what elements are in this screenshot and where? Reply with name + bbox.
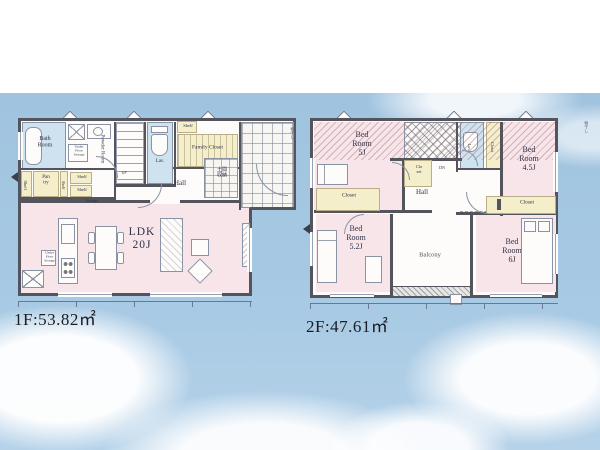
window-peak-icon bbox=[446, 111, 462, 118]
bed-5j bbox=[317, 164, 348, 185]
hall-1f-label: Hall bbox=[160, 180, 200, 188]
pantry-label: Pan try bbox=[33, 174, 59, 185]
entrance-storage-label: 土間 収納 bbox=[206, 167, 238, 178]
window bbox=[310, 158, 315, 188]
window bbox=[150, 292, 222, 297]
lav-1f-label: Lav. bbox=[147, 158, 173, 164]
window-peak-icon bbox=[126, 111, 142, 118]
window-peak-icon bbox=[62, 111, 78, 118]
wall bbox=[174, 122, 176, 186]
1f-area-label: 1F:53.82㎡ bbox=[14, 305, 96, 330]
bed-room-5j-label: Bed Room 5J bbox=[332, 131, 392, 158]
window bbox=[58, 292, 112, 297]
shelf-left-label: Shelf bbox=[23, 174, 28, 196]
bed-5-2j bbox=[317, 230, 337, 283]
window bbox=[553, 234, 558, 274]
pillow bbox=[524, 221, 536, 232]
shelf-box-2-label: Shelf bbox=[71, 187, 93, 192]
vent-mark-icon bbox=[303, 224, 310, 234]
bed-room-4-5j-label: Bed Room 4.5J bbox=[504, 146, 554, 173]
toilet-tank-1f bbox=[151, 126, 168, 133]
2f-area-label: 2F:47.61㎡ bbox=[306, 312, 388, 337]
wall bbox=[470, 214, 473, 298]
floor-plan-image: Bath Room Powder Room Under Floor Storag… bbox=[0, 0, 600, 450]
window bbox=[18, 132, 23, 160]
chair bbox=[117, 252, 124, 264]
bath-room-label: Bath Room bbox=[30, 135, 60, 148]
dimension-line-2f bbox=[310, 303, 558, 309]
wall bbox=[250, 207, 296, 210]
chair bbox=[88, 252, 95, 264]
1f-edge-note: 物干し bbox=[290, 120, 294, 146]
chair bbox=[117, 232, 124, 244]
side-table bbox=[191, 239, 209, 256]
balcony-label: Balcony bbox=[398, 251, 462, 258]
closet-tall-label: Closet bbox=[490, 127, 494, 167]
shelf-top-label: Shelf bbox=[178, 123, 198, 128]
dn-label: DN bbox=[437, 166, 447, 170]
closet-4-5j-label: Closet bbox=[496, 199, 558, 205]
window-peak-icon bbox=[518, 111, 534, 118]
window bbox=[247, 228, 252, 272]
desk-5-2j bbox=[365, 256, 382, 283]
window bbox=[330, 292, 374, 297]
chair bbox=[88, 232, 95, 244]
washer-pan bbox=[68, 124, 85, 140]
window bbox=[310, 232, 315, 266]
fridge-space bbox=[22, 270, 44, 288]
wall bbox=[458, 168, 502, 170]
vent-mark-icon bbox=[11, 172, 18, 182]
shelf-right-label: Shelf bbox=[61, 174, 65, 196]
pillow bbox=[538, 221, 550, 232]
window bbox=[490, 292, 542, 297]
closet-hall-label: Clo set bbox=[406, 164, 432, 174]
kitchen-sink bbox=[61, 224, 75, 244]
toilet-1f bbox=[151, 134, 168, 156]
dining-table bbox=[95, 226, 117, 270]
under-floor-storage-label: Under Floor Storage bbox=[69, 145, 89, 157]
under-floor-storage-kitchen-label: Under Floor Storage bbox=[42, 251, 57, 263]
window-peak-icon bbox=[336, 111, 352, 118]
up-label: UP bbox=[118, 171, 130, 175]
2f-edge-note: 物干し bbox=[584, 114, 588, 140]
closet-5j-label: Closet bbox=[318, 192, 380, 198]
kitchen-stove bbox=[61, 258, 75, 278]
window-peak-icon bbox=[200, 111, 216, 118]
shelf-box-1-label: Shelf bbox=[71, 174, 93, 179]
wall bbox=[144, 122, 146, 186]
window bbox=[553, 152, 558, 192]
family-closet-label: Family Closet bbox=[177, 144, 238, 150]
sofa bbox=[160, 218, 183, 272]
hall-2f-label: Hall bbox=[406, 189, 438, 197]
storage-label: Storage bbox=[82, 199, 102, 203]
wall bbox=[456, 122, 458, 172]
